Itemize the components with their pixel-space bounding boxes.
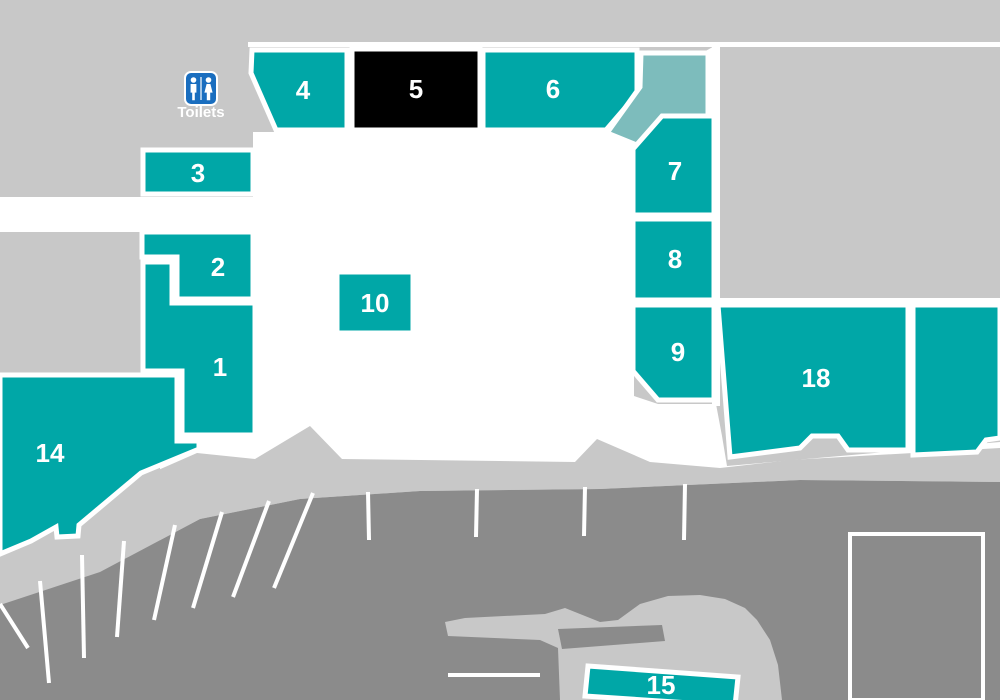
female-figure-icon bbox=[206, 77, 212, 83]
mall-map: 12345678910141518Toilets bbox=[0, 0, 1000, 700]
unit-right-unlabeled-shape[interactable] bbox=[913, 305, 1000, 455]
parking-bay-line-11 bbox=[684, 484, 685, 540]
parking-bay-line-10 bbox=[584, 487, 585, 536]
unit-3-label: 3 bbox=[191, 158, 205, 188]
unit-6-label: 6 bbox=[546, 74, 560, 104]
unit-8-label: 8 bbox=[668, 244, 682, 274]
site-boundary-line bbox=[248, 42, 1000, 47]
parking-bay-line-2 bbox=[82, 555, 84, 658]
male-figure-icon bbox=[191, 77, 197, 83]
unit-18-label: 18 bbox=[802, 363, 831, 393]
parking-bay-line-9 bbox=[476, 489, 477, 537]
toilets-label: Toilets bbox=[177, 104, 224, 121]
unit-2-label: 2 bbox=[211, 252, 225, 282]
site-map-canvas: 12345678910141518Toilets bbox=[0, 0, 1000, 700]
unit-15-label: 15 bbox=[647, 670, 676, 700]
unit-4-label: 4 bbox=[296, 75, 311, 105]
toilets-sign: Toilets bbox=[177, 72, 224, 121]
unit-5-label: 5 bbox=[409, 74, 423, 104]
unit-7-label: 7 bbox=[668, 156, 682, 186]
unit-9-label: 9 bbox=[671, 337, 685, 367]
unit-10-label: 10 bbox=[361, 288, 390, 318]
unit-1-label: 1 bbox=[213, 352, 227, 382]
parking-bay-line-8 bbox=[368, 492, 369, 540]
unit-14-label: 14 bbox=[36, 438, 65, 468]
